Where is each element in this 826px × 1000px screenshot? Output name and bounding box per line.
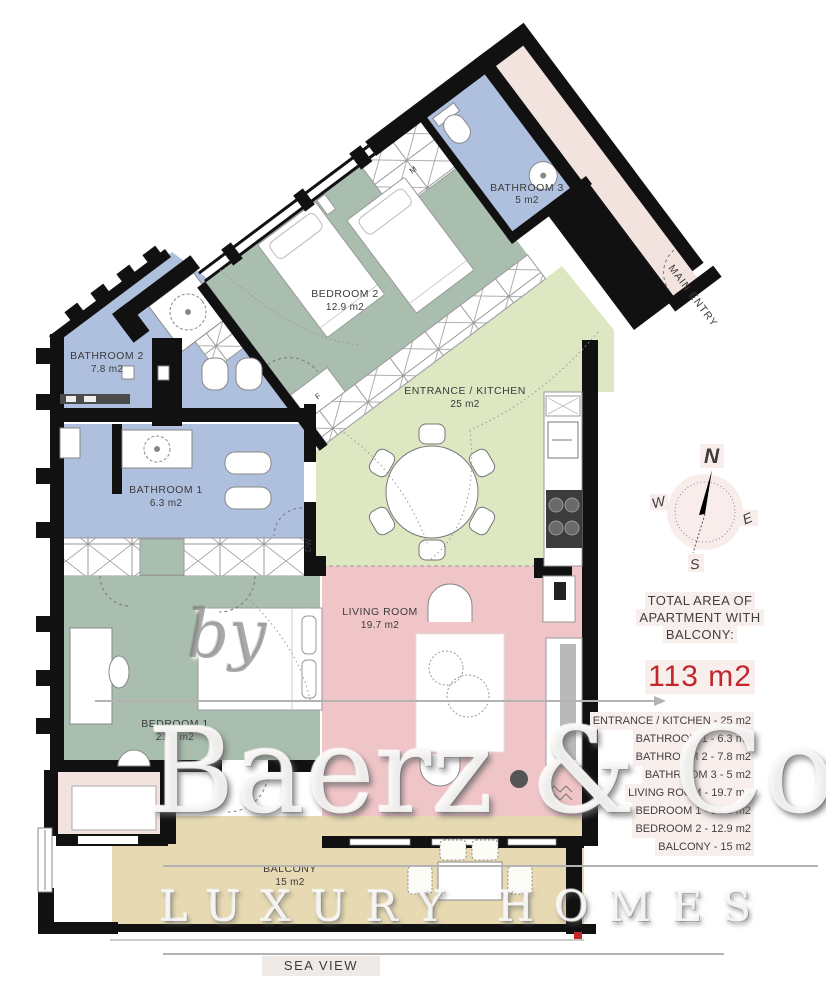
sea-view-label: SEA VIEW	[284, 958, 358, 973]
list-item: BEDROOM 2 - 12.9 m2	[590, 820, 754, 838]
label-bedroom-2: BEDROOM 2	[311, 288, 379, 300]
area-kitchen: 25 m2	[450, 399, 479, 410]
dining-table	[386, 446, 478, 538]
compass-north-label: N	[704, 445, 720, 468]
room-area-list: ENTRANCE / KITCHEN - 25 m2 BATHROOM 1 - …	[590, 712, 754, 856]
wardrobe-row	[52, 538, 320, 576]
list-item: BEDROOM 1 - 21.3 m2	[590, 802, 754, 820]
area-bathroom-3: 5 m2	[515, 195, 539, 206]
list-item: ENTRANCE / KITCHEN - 25 m2	[590, 712, 754, 730]
vestibule-closet	[72, 786, 156, 830]
area-balcony: 15 m2	[275, 877, 304, 888]
total-area-value: 113 m2	[600, 660, 800, 694]
compass: N W E S	[650, 444, 758, 573]
wardrobe-green-cell	[140, 539, 184, 575]
red-mark	[574, 932, 582, 939]
floorplan-page: M F	[0, 0, 826, 1000]
area-bedroom-1: 21.3 m2	[156, 732, 194, 743]
area-bedroom-2: 12.9 m2	[326, 302, 364, 313]
list-item: LIVING ROOM - 19.7 m2	[590, 784, 754, 802]
list-item: BATHROOM 1 - 6.3 m2	[590, 730, 754, 748]
list-item: BATHROOM 2 - 7.8 m2	[590, 748, 754, 766]
dishwasher-label: DW	[304, 538, 313, 552]
label-balcony: BALCONY	[263, 863, 317, 875]
arrow-head	[654, 696, 666, 706]
list-item: BATHROOM 3 - 5 m2	[590, 766, 754, 784]
label-living: LIVING ROOM	[342, 606, 418, 618]
title-line-2: APARTMENT WITH	[636, 609, 763, 626]
total-area-title: TOTAL AREA OF APARTMENT WITH BALCONY:	[600, 592, 800, 643]
title-line-1: TOTAL AREA OF	[645, 592, 756, 609]
label-bedroom-1: BEDROOM 1	[141, 718, 209, 730]
list-item: BALCONY - 15 m2	[590, 838, 754, 856]
label-bathroom-1: BATHROOM 1	[129, 484, 203, 496]
label-bathroom-3: BATHROOM 3	[490, 182, 564, 194]
label-bathroom-2: BATHROOM 2	[70, 350, 144, 362]
area-bathroom-1: 6.3 m2	[150, 498, 183, 509]
area-bathroom-2: 7.8 m2	[91, 364, 124, 375]
label-kitchen: ENTRANCE / KITCHEN	[404, 385, 526, 397]
title-line-3: BALCONY:	[663, 626, 737, 643]
area-living: 19.7 m2	[361, 620, 399, 631]
